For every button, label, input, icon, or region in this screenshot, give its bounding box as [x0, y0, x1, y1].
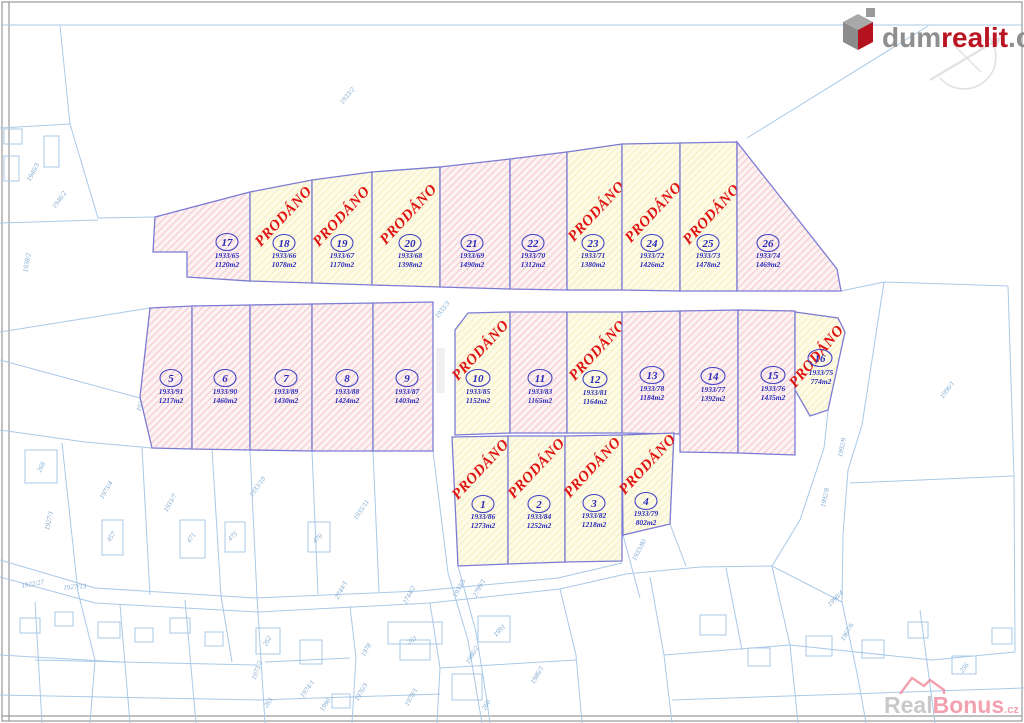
plot-15: 15 1933/76 1435m2 [738, 310, 795, 455]
plot-2-number: 2 [535, 499, 542, 511]
realbonus-watermark: RealBonus.cz [884, 678, 1019, 718]
plot-11: 11 1933/83 1165m2 [510, 312, 567, 433]
bg-parcel-label: 1933/7 [162, 492, 179, 513]
bg-parcel-label: 2799/1 [471, 578, 487, 599]
plot-22-shape [510, 152, 567, 290]
plot-11-area: 1165m2 [528, 396, 552, 405]
plot-16-number: 16 [815, 353, 827, 365]
bg-parcel-label: 1935/11 [352, 498, 371, 521]
plot-21: 21 1933/69 1490m2 [440, 159, 510, 289]
plot-17: 17 1933/65 1120m2 [153, 192, 250, 281]
plot-13-parcel: 1933/78 [640, 384, 665, 393]
plot-10: PRODÁNO 10 1933/85 1152m2 [448, 312, 512, 435]
plot-15-number: 15 [768, 370, 780, 382]
plot-19: PRODÁNO 19 1933/67 1170m2 [309, 172, 373, 285]
plot-23: PRODÁNO 23 1933/71 1380m2 [564, 144, 628, 290]
dumrealit-house-icon [843, 8, 875, 50]
bg-parcel-label: 471 [185, 531, 198, 544]
plot-11-number: 11 [535, 373, 545, 385]
bg-parcel-label: 1996/1 [939, 380, 957, 401]
logo-wordmark: dumrealit.cz [882, 22, 1024, 53]
bg-parcel-label: 268 [35, 460, 47, 473]
bg-parcel-label: 1992/8 [819, 487, 831, 508]
plot-9-shape [373, 302, 433, 451]
plot-14: 14 1933/77 1392m2 [680, 310, 738, 453]
bg-parcel-label: 1986/1 [529, 665, 546, 686]
plot-9-number: 9 [404, 373, 410, 385]
plot-25-number: 25 [702, 238, 715, 250]
plot-2-area: 1252m2 [527, 521, 552, 530]
plot-14-parcel: 1933/77 [701, 385, 726, 394]
plot-10-number: 10 [473, 373, 485, 385]
bg-parcel-label: 1974/1 [299, 679, 317, 700]
plot-3-area: 1218m2 [582, 520, 607, 529]
plot-9-parcel: 1933/87 [395, 387, 420, 396]
plot-17-parcel: 1933/65 [215, 251, 240, 260]
plot-7-shape [250, 304, 312, 451]
svg-text:RealBonus.cz: RealBonus.cz [884, 692, 1019, 718]
plot-5-area: 1217m2 [159, 396, 184, 405]
plot-19-parcel: 1933/67 [330, 251, 355, 260]
plot-13: 13 1933/78 1184m2 [622, 311, 680, 434]
plot-3-parcel: 1933/82 [582, 511, 607, 520]
bg-parcel-label: 1967/6 [839, 621, 856, 642]
plot-12-area: 1164m2 [583, 397, 607, 406]
plot-6-parcel: 1933/90 [213, 387, 238, 396]
plot-9: 9 1933/87 1403m2 [373, 302, 433, 451]
plot-22-number: 22 [527, 238, 540, 250]
plot-26-shape [737, 142, 841, 291]
plot-1-number: 1 [480, 499, 486, 511]
plot-23-parcel: 1933/71 [581, 251, 606, 260]
plot-8-parcel: 1933/88 [335, 387, 360, 396]
bg-parcel-label: 263 [262, 696, 275, 710]
cadastral-map-page: dumrealit [0, 0, 1024, 723]
plot-20-parcel: 1933/68 [398, 251, 423, 260]
bg-parcel-label: 1991 [492, 623, 508, 639]
plot-18-parcel: 1933/66 [272, 251, 297, 260]
plot-4-number: 4 [642, 496, 649, 508]
plot-3-number: 3 [590, 498, 597, 510]
plot-9-area: 1403m2 [395, 396, 420, 405]
plot-13-area: 1184m2 [640, 393, 664, 402]
plot-15-parcel: 1933/76 [761, 384, 786, 393]
bg-parcel-label: 1933/2 [338, 85, 357, 106]
plot-2: PRODÁNO 2 1933/84 1252m2 [504, 435, 568, 564]
bg-parcel-label: 475 [226, 530, 240, 543]
plot-24-number: 24 [646, 238, 659, 250]
plot-24: PRODÁNO 24 1933/72 1426m2 [621, 143, 685, 291]
plot-14-number: 14 [708, 371, 720, 383]
bg-parcel-label: 1986/2 [464, 644, 481, 665]
plot-12: PRODÁNO 12 1933/81 1164m2 [565, 312, 629, 433]
plot-10-area: 1152m2 [466, 396, 490, 405]
bg-parcel-label: 1978 [359, 642, 373, 659]
bg-parcel-label: 261 [405, 634, 418, 646]
plot-6: 6 1933/90 1460m2 [192, 305, 250, 450]
plot-18-number: 18 [279, 238, 291, 250]
bg-parcel-label: 2744/1 [333, 580, 349, 601]
plot-6-number: 6 [222, 373, 228, 385]
bg-parcel-label: 1976/3 [353, 681, 370, 702]
plot-22-parcel: 1933/70 [521, 251, 546, 260]
plot-19-number: 19 [337, 238, 349, 250]
bg-parcel-label: 1938/2 [21, 252, 32, 273]
bg-parcel-label: 2744/2 [401, 584, 417, 605]
plot-7-number: 7 [283, 373, 289, 385]
plot-12-parcel: 1933/81 [583, 388, 608, 397]
plot-22-area: 1312m2 [521, 260, 546, 269]
plot-21-shape [440, 159, 510, 289]
bg-parcel-label: 1990 [318, 696, 333, 712]
plot-16-area: 774m2 [811, 377, 832, 386]
bg-parcel-label: 1927/1 [43, 510, 55, 531]
bg-parcel-label: 1933/3 [433, 299, 452, 320]
plot-4-parcel: 1933/79 [634, 509, 659, 518]
plot-8-area: 1424m2 [335, 396, 360, 405]
plot-18: PRODÁNO 18 1933/66 1078m2 [250, 180, 316, 283]
plot-7-parcel: 1933/89 [274, 387, 299, 396]
bg-parcel-label: 256 [958, 661, 971, 675]
plot-26-area: 1469m2 [756, 260, 781, 269]
plot-19-area: 1170m2 [330, 260, 354, 269]
plot-25-parcel: 1933/73 [696, 251, 721, 260]
plot-2-parcel: 1933/84 [527, 512, 552, 521]
plot-8-number: 8 [344, 373, 350, 385]
bg-parcel-label: 262 [261, 634, 273, 648]
bg-parcel-label: 1946/3 [25, 161, 41, 182]
plot-5-shape [140, 306, 192, 449]
plot-10-parcel: 1933/85 [466, 387, 491, 396]
bg-parcel-label: 457 [105, 530, 118, 544]
plot-13-number: 13 [647, 370, 659, 382]
plot-20-number: 20 [404, 238, 417, 250]
plot-18-area: 1078m2 [272, 260, 297, 269]
plot-25-area: 1478m2 [696, 260, 721, 269]
plot-7-area: 1430m2 [274, 396, 299, 405]
plot-4-area: 802m2 [636, 518, 657, 527]
plot-7: 7 1933/89 1430m2 [250, 304, 312, 451]
plot-5-number: 5 [168, 373, 174, 385]
plot-8-shape [312, 303, 373, 451]
plot-21-parcel: 1933/69 [460, 251, 485, 260]
plot-1-area: 1273m2 [471, 521, 496, 530]
plot-12-number: 12 [590, 374, 602, 386]
plot-25: PRODÁNO 25 1933/73 1478m2 [679, 142, 743, 291]
plot-24-parcel: 1933/72 [640, 251, 665, 260]
plot-23-number: 23 [587, 238, 600, 250]
plot-11-parcel: 1933/83 [528, 387, 553, 396]
plot-26-number: 26 [762, 238, 775, 250]
plot-6-shape [192, 305, 250, 450]
plot-20: PRODÁNO 20 1933/68 1398m2 [372, 167, 441, 287]
bg-parcel-label: 1946/2 [51, 189, 69, 210]
plot-4: PRODÁNO 4 1933/79 802m2 [615, 431, 679, 535]
development-plots: 17 1933/65 1120m2 PRODÁNO 18 1933/66 107… [140, 142, 847, 566]
plot-14-area: 1392m2 [701, 394, 726, 403]
plot-26: 26 1933/74 1469m2 [737, 142, 841, 291]
plot-17-number: 17 [222, 237, 234, 249]
bg-parcel-label: 470 [311, 532, 325, 545]
cadastral-map: dumrealit [0, 0, 1024, 723]
bg-parcel-label: 1933/10 [248, 475, 268, 499]
dumrealit-logo[interactable]: dumrealit.cz [843, 8, 1024, 89]
plot-20-area: 1398m2 [398, 260, 423, 269]
plot-23-area: 1380m2 [581, 260, 606, 269]
plot-21-area: 1490m2 [460, 260, 485, 269]
bg-parcel-label: 1978/1 [403, 687, 420, 708]
plot-5: 5 1933/91 1217m2 [140, 306, 192, 449]
plot-8: 8 1933/88 1424m2 [312, 303, 373, 451]
bg-parcel-label: 1992/9 [836, 437, 848, 458]
bg-parcel-label: 1973/4 [98, 479, 115, 500]
plot-21-number: 21 [466, 238, 478, 250]
plot-6-area: 1460m2 [213, 396, 238, 405]
bg-parcel-label: 1927/13 [63, 582, 87, 592]
plot-26-parcel: 1933/74 [756, 251, 781, 260]
plot-17-area: 1120m2 [215, 260, 239, 269]
plot-24-area: 1426m2 [640, 260, 665, 269]
plot-1-parcel: 1933/86 [471, 512, 496, 521]
plot-22: 22 1933/70 1312m2 [510, 152, 567, 290]
plot-5-parcel: 1933/91 [159, 387, 184, 396]
plot-16-parcel: 1933/75 [809, 368, 834, 377]
plot-1: PRODÁNO 1 1933/86 1273m2 [448, 436, 512, 566]
plot-15-area: 1435m2 [761, 393, 786, 402]
bg-parcel-label: 1933/80 [630, 538, 648, 562]
plot-3: PRODÁNO 3 1933/82 1218m2 [560, 434, 624, 562]
